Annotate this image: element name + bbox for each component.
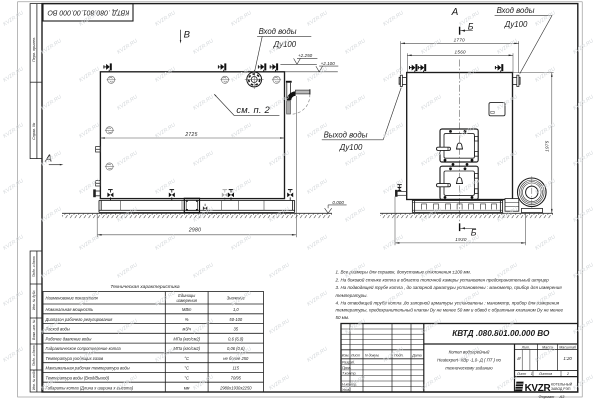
svg-text:Изм.: Изм.: [342, 354, 350, 358]
svg-text:1975: 1975: [544, 140, 549, 152]
svg-text:Ду100: Ду100: [339, 143, 363, 152]
svg-text:Формат: Формат: [539, 394, 556, 399]
svg-text:Перв. примен.: Перв. примен.: [32, 37, 36, 62]
svg-text:3. На подводящей трубе котла: 3. На подводящей трубе котла , до запорн…: [336, 284, 563, 290]
svg-text:°С: °С: [184, 366, 189, 371]
svg-text:°С: °С: [184, 376, 189, 381]
svg-text:Лист: Лист: [350, 354, 360, 358]
svg-text:Разраб.: Разраб.: [342, 360, 355, 364]
svg-text:Габариты котла (Длина х ширина: Габариты котла (Длина х ширина х высота): [46, 385, 134, 390]
svg-text:Инв. № дубл.: Инв. № дубл.: [32, 290, 36, 310]
svg-text:Лит.: Лит.: [521, 346, 530, 350]
svg-text:Рабочее давление воды: Рабочее давление воды: [46, 336, 92, 341]
svg-text:2. На боковой стенке котла в: 2. На боковой стенке котла в области топ…: [335, 276, 550, 282]
svg-text:1770: 1770: [454, 37, 466, 42]
svg-text:А: А: [451, 7, 459, 18]
svg-text:Масштаб: Масштаб: [559, 346, 577, 350]
svg-text:КВТД .080.801.00.000 ВО: КВТД .080.801.00.000 ВО: [47, 9, 129, 16]
svg-text:0,06 (0,6): 0,06 (0,6): [227, 346, 245, 351]
svg-text:КОТЕЛЬНЫЙ: КОТЕЛЬНЫЙ: [551, 383, 573, 387]
svg-text:1930: 1930: [455, 237, 467, 242]
svg-text:50-100: 50-100: [229, 317, 242, 322]
svg-text:А3: А3: [559, 394, 566, 399]
svg-text:2725: 2725: [184, 132, 197, 138]
svg-text:%: %: [185, 317, 189, 322]
svg-text:не более 250: не более 250: [223, 356, 249, 361]
svg-text:Подп.: Подп.: [394, 354, 404, 358]
svg-text:Номинальная мощность: Номинальная мощность: [46, 307, 94, 312]
svg-text:мм: мм: [184, 385, 190, 390]
svg-text:МПа (кгс/см2): МПа (кгс/см2): [173, 336, 200, 341]
svg-text:Наименование показателя: Наименование показателя: [46, 296, 99, 301]
svg-text:1:20: 1:20: [563, 356, 572, 361]
svg-text:Выход воды: Выход воды: [324, 131, 368, 140]
svg-text:Техническая характеристика: Техническая характеристика: [110, 284, 180, 290]
svg-text:Т.контр.: Т.контр.: [342, 371, 357, 375]
svg-text:2: 2: [566, 372, 569, 376]
svg-text:техническому заданию: техническому заданию: [445, 366, 493, 371]
svg-text:МВт: МВт: [182, 307, 192, 312]
svg-text:А: А: [44, 153, 52, 164]
svg-text:Вход воды: Вход воды: [497, 6, 535, 15]
svg-text:Значение: Значение: [227, 296, 246, 301]
svg-text:Ду100: Ду100: [504, 20, 528, 29]
svg-text:4. На отводящей трубе котла ,: 4. На отводящей трубе котла ,до запорной…: [336, 300, 560, 306]
svg-text:измерения: измерения: [176, 298, 197, 303]
svg-text:Максимальная рабочая температу: Максимальная рабочая температура воды: [46, 366, 130, 371]
svg-text:ЗАВОД РЭП: ЗАВОД РЭП: [551, 387, 571, 391]
svg-text:Утв.: Утв.: [342, 388, 350, 392]
svg-text:1560: 1560: [454, 49, 466, 54]
svg-text:0.000: 0.000: [332, 200, 344, 205]
svg-text:Листов: Листов: [538, 372, 552, 376]
svg-text:Н.контр.: Н.контр.: [342, 383, 357, 387]
svg-text:50 мм.: 50 мм.: [336, 315, 350, 320]
svg-text:115: 115: [233, 366, 240, 371]
svg-text:Справ. №: Справ. №: [32, 123, 36, 140]
svg-text:Б: Б: [468, 21, 474, 31]
svg-text:2980: 2980: [188, 227, 201, 233]
svg-text:1. Все размеры для справок, д: 1. Все размеры для справок, допустимые о…: [336, 269, 471, 274]
svg-text:Пров.: Пров.: [342, 366, 351, 370]
svg-text:+2.100: +2.100: [321, 61, 336, 66]
svg-text:м3/ч: м3/ч: [183, 327, 192, 332]
svg-text:N докум.: N докум.: [365, 354, 380, 358]
svg-text:Дата: Дата: [411, 354, 421, 358]
svg-text:Б: Б: [471, 227, 477, 237]
svg-text:Взам. инв. №: Взам. инв. №: [32, 319, 36, 340]
svg-text:температуры.: температуры.: [336, 293, 368, 298]
svg-text:В: В: [184, 29, 191, 40]
svg-text:Температура уходящих газов: Температура уходящих газов: [46, 356, 105, 361]
svg-text:0,6 (6,0): 0,6 (6,0): [228, 336, 244, 341]
svg-text:2980х1930х2250: 2980х1930х2250: [219, 385, 252, 390]
svg-text:1: 1: [531, 372, 533, 376]
svg-text:Котел водогрейный: Котел водогрейный: [449, 350, 490, 355]
svg-text:см. п. 2: см. п. 2: [236, 104, 270, 115]
svg-text:Масса: Масса: [542, 346, 553, 350]
svg-text:Heatexpert- КВр -1,0- Д ( ПТ ): Heatexpert- КВр -1,0- Д ( ПТ ) по: [437, 358, 501, 363]
svg-text:Подп. и дата: Подп. и дата: [32, 256, 36, 277]
svg-text:КВТД .080.801.00.000 ВО: КВТД .080.801.00.000 ВО: [452, 329, 550, 338]
svg-text:Гидравлическое сопротивление к: Гидравлическое сопротивление котла: [46, 346, 122, 351]
svg-text:Диапазон рабочего регулировани: Диапазон рабочего регулирования: [45, 317, 114, 322]
svg-text:Температура воды (Вход/Выход): Температура воды (Вход/Выход): [46, 376, 110, 381]
svg-text:KVZR: KVZR: [525, 383, 551, 394]
svg-text:+2.250: +2.250: [298, 53, 313, 58]
svg-text:Подп. и дата: Подп. и дата: [32, 345, 36, 366]
svg-text:°С: °С: [184, 356, 189, 361]
svg-text:70/95: 70/95: [231, 376, 242, 381]
svg-text:Инв. № подл.: Инв. № подл.: [32, 369, 36, 390]
svg-text:температуры, предохранительный: температуры, предохранительный клапан Dу…: [336, 307, 564, 313]
svg-text:Лист: Лист: [516, 372, 526, 376]
svg-text:Расход воды: Расход воды: [46, 327, 70, 332]
svg-text:Вход воды: Вход воды: [259, 27, 297, 36]
svg-text:Ду100: Ду100: [273, 40, 297, 49]
svg-text:35: 35: [234, 327, 239, 332]
svg-text:МПа (кгс/см2): МПа (кгс/см2): [173, 346, 200, 351]
svg-text:1,0: 1,0: [233, 307, 239, 312]
